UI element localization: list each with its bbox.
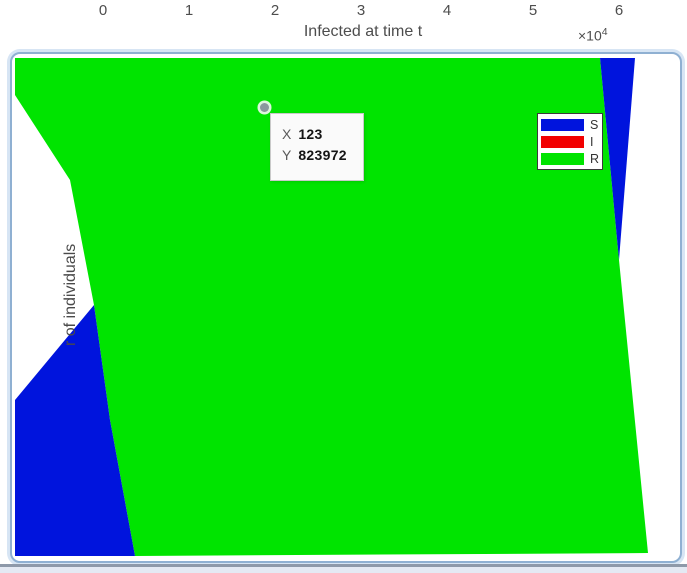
x-tick-2: 2 xyxy=(263,2,287,19)
datatip-x-value: 123 xyxy=(298,126,322,142)
legend-label-i: I xyxy=(590,135,593,149)
x-axis-title: Infected at time t xyxy=(288,23,438,41)
legend-swatch-r xyxy=(541,153,584,165)
plot-panel[interactable]: r of individuals X123 Y823972 S I R xyxy=(10,52,682,563)
x-tick-4: 4 xyxy=(435,2,459,19)
datatip-marker-icon[interactable] xyxy=(260,103,269,112)
x-tick-6: 6 xyxy=(607,2,631,19)
legend-entry-i[interactable]: I xyxy=(541,134,599,149)
y-axis-title: r of individuals xyxy=(62,244,80,346)
x-axis-exponent: ×104 xyxy=(578,26,608,44)
legend[interactable]: S I R xyxy=(537,113,603,170)
x-axis-exponent-power: 4 xyxy=(602,26,608,38)
legend-entry-s[interactable]: S xyxy=(541,117,599,132)
datatip-tooltip[interactable]: X123 Y823972 xyxy=(270,113,364,181)
legend-label-r: R xyxy=(590,152,599,166)
legend-swatch-s xyxy=(541,119,584,131)
x-tick-1: 1 xyxy=(177,2,201,19)
x-tick-3: 3 xyxy=(349,2,373,19)
legend-label-s: S xyxy=(590,118,598,132)
datatip-y-row: Y823972 xyxy=(282,145,363,166)
x-axis-exponent-base: ×10 xyxy=(578,28,602,44)
legend-entry-r[interactable]: R xyxy=(541,151,599,166)
datatip-x-label: X xyxy=(282,126,291,142)
legend-swatch-i xyxy=(541,136,584,148)
x-tick-0: 0 xyxy=(91,2,115,19)
x-tick-5: 5 xyxy=(521,2,545,19)
datatip-x-row: X123 xyxy=(282,124,363,145)
datatip-y-value: 823972 xyxy=(298,147,347,163)
window-bottom-strip xyxy=(0,567,687,573)
figure-window: 0 1 2 3 4 5 6 Infected at time t ×104 r … xyxy=(0,0,687,573)
datatip-y-label: Y xyxy=(282,147,291,163)
